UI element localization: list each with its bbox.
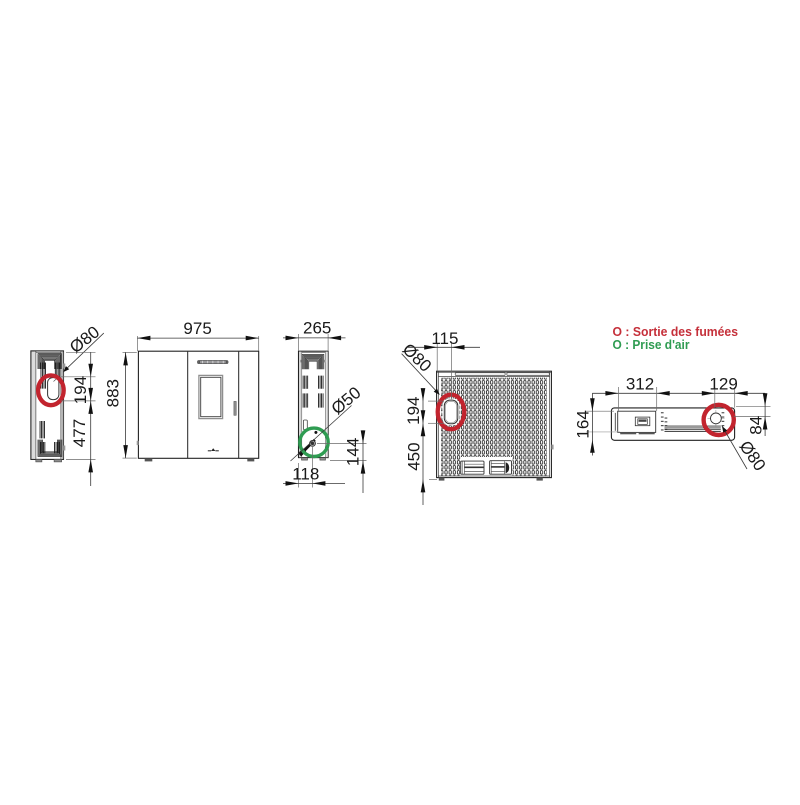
- svg-text:194: 194: [404, 397, 423, 425]
- svg-text:129: 129: [709, 375, 737, 394]
- svg-text:477: 477: [70, 419, 89, 447]
- svg-text:164: 164: [574, 410, 593, 438]
- svg-text:265: 265: [303, 318, 331, 337]
- svg-text:883: 883: [104, 379, 123, 407]
- svg-text:450: 450: [404, 442, 423, 470]
- svg-text:144: 144: [344, 438, 363, 466]
- svg-text:84: 84: [746, 416, 765, 435]
- svg-text:118: 118: [292, 464, 319, 483]
- svg-text:312: 312: [626, 375, 654, 394]
- svg-text:O : Prise d'air: O : Prise d'air: [613, 337, 690, 352]
- svg-text:975: 975: [183, 319, 211, 338]
- svg-text:194: 194: [71, 376, 90, 404]
- svg-text:115: 115: [431, 329, 458, 348]
